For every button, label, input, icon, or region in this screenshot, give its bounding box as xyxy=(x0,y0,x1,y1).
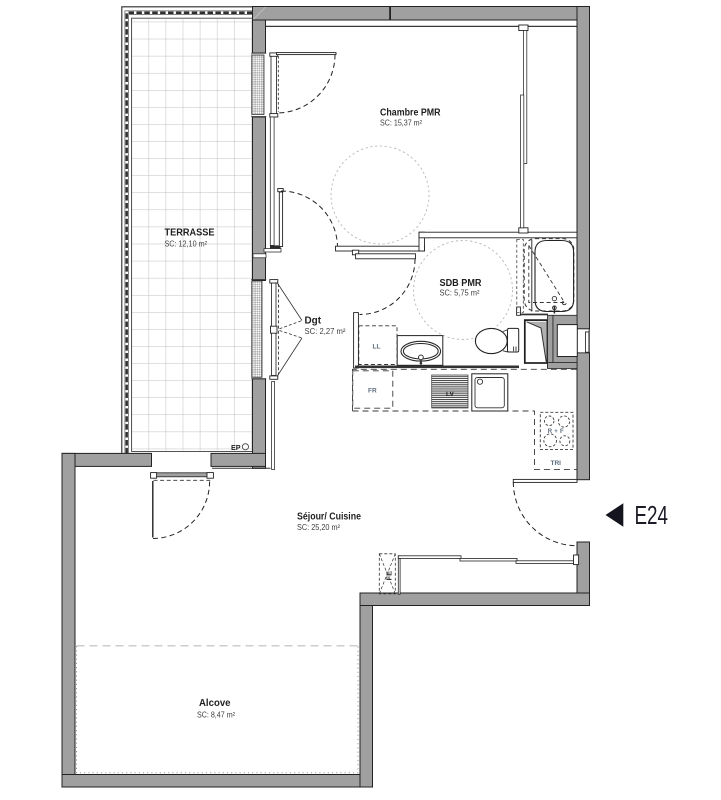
svg-text:R+F: R+F xyxy=(548,429,564,435)
svg-text:FR: FR xyxy=(368,388,377,395)
svg-text:SC: 25,20 m²: SC: 25,20 m² xyxy=(297,523,340,532)
svg-text:Alcove: Alcove xyxy=(199,697,231,709)
svg-text:SC: 5,75 m²: SC: 5,75 m² xyxy=(440,289,480,298)
svg-text:E24: E24 xyxy=(635,502,669,530)
svg-text:TERRASSE: TERRASSE xyxy=(165,227,215,239)
svg-text:SC: 12,10 m²: SC: 12,10 m² xyxy=(165,240,208,249)
svg-text:EP: EP xyxy=(231,443,241,452)
svg-text:SDB PMR: SDB PMR xyxy=(440,277,482,289)
svg-text:Séjour/ Cuisine: Séjour/ Cuisine xyxy=(297,511,361,523)
svg-text:Dgt: Dgt xyxy=(305,315,322,327)
svg-text:LV: LV xyxy=(446,391,454,398)
svg-text:SC: 15,37 m²: SC: 15,37 m² xyxy=(380,119,422,128)
svg-text:TRI: TRI xyxy=(551,460,562,467)
svg-text:LL: LL xyxy=(373,344,381,351)
svg-text:Chambre PMR: Chambre PMR xyxy=(380,107,441,119)
svg-text:SC: 2,27 m²: SC: 2,27 m² xyxy=(305,327,346,336)
svg-text:FE: FE xyxy=(385,571,394,581)
svg-text:SC: 8,47 m²: SC: 8,47 m² xyxy=(197,711,235,720)
